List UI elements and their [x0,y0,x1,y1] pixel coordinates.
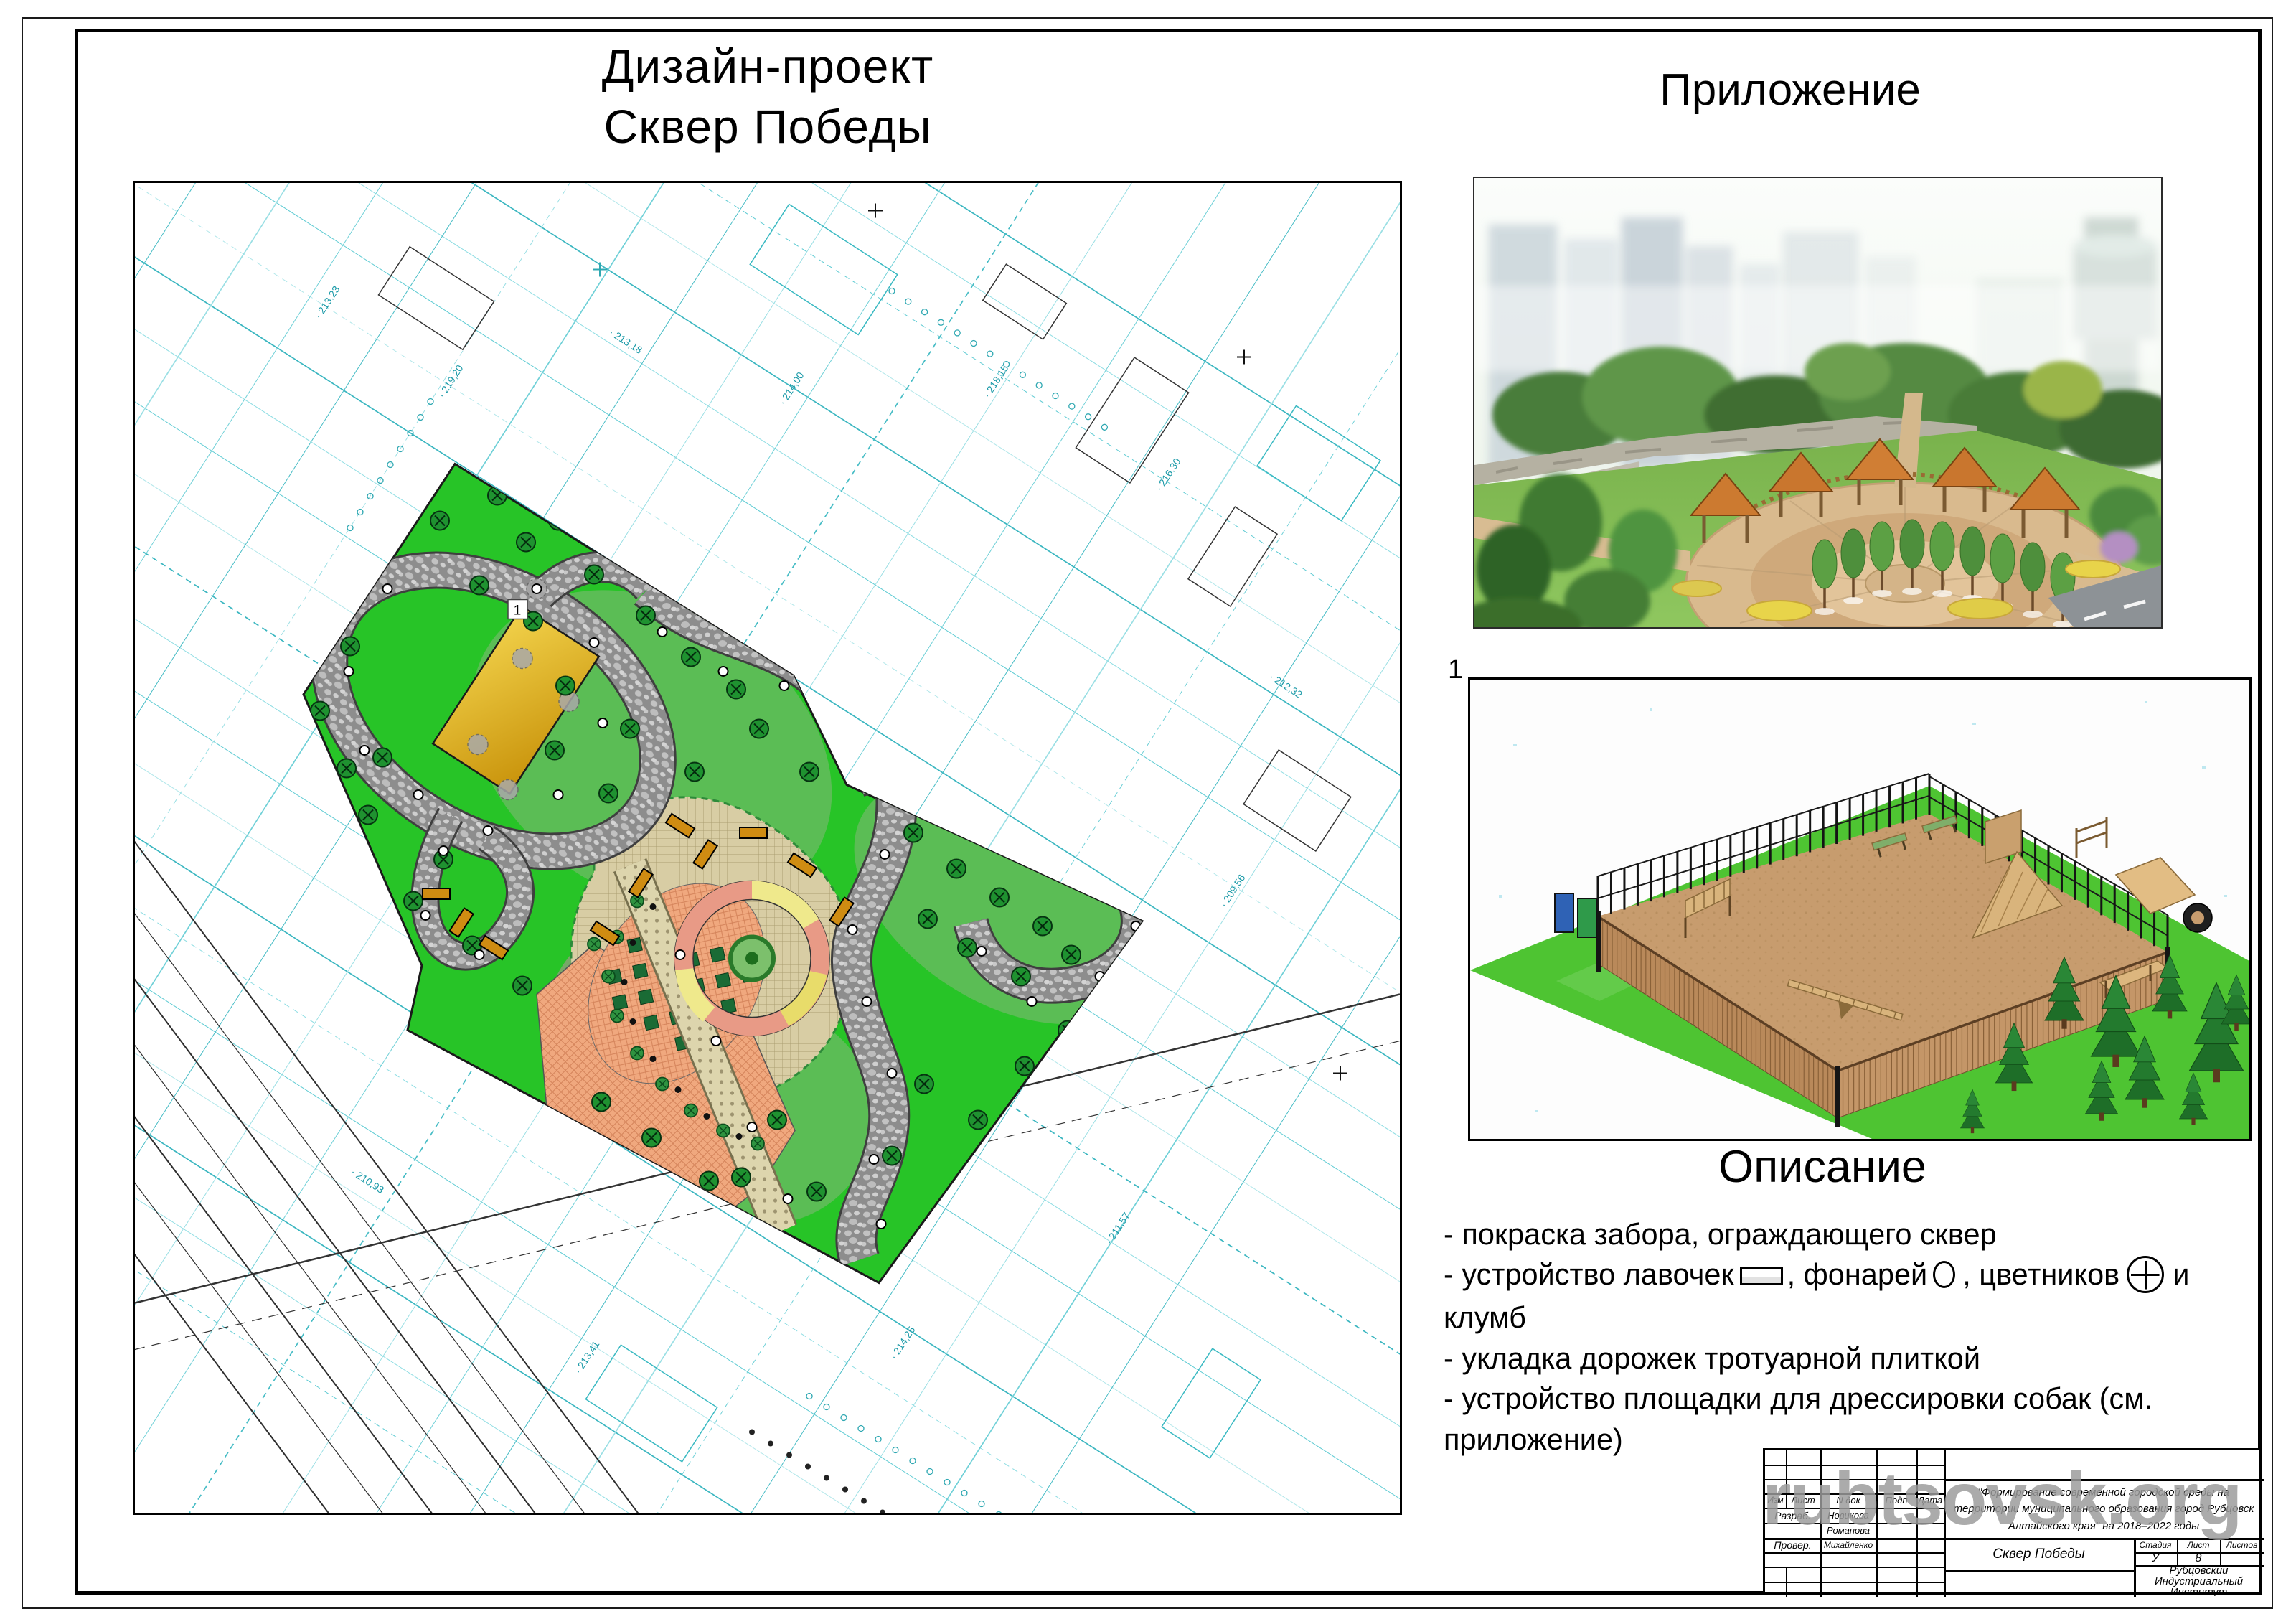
bench-icon [1740,1267,1783,1285]
site-plan-map: · 213,23· 219,20· 213,18· 214,00· 218,15… [133,181,1402,1515]
svg-text:· 218,15: · 218,15 [981,362,1011,400]
svg-text:· 214,00: · 214,00 [776,370,806,407]
svg-text:· 213,18: · 213,18 [607,327,644,357]
dog-area-svg [1470,680,2249,1139]
park-render-image [1473,177,2163,629]
park-render-svg [1474,178,2161,627]
svg-text:· 211,57: · 211,57 [1103,1210,1132,1247]
svg-text:· 216,30: · 216,30 [1153,456,1183,493]
lamp-icon [1933,1261,1955,1288]
appendix-title: Приложение [1507,65,2074,116]
description-list: - покраска забора, ограждающего сквер - … [1444,1214,2262,1460]
page-title-line2: Сквер Победы [402,96,1134,156]
svg-text:· 213,23: · 213,23 [312,283,342,321]
description-item-1: - покраска забора, ограждающего сквер [1444,1214,2262,1254]
description-item2-text-a: - устройство лавочек [1444,1257,1734,1291]
dog-area-render-image [1468,677,2252,1141]
figure1-label: 1 [1448,654,1463,685]
svg-text:· 213,41: · 213,41 [572,1338,602,1376]
svg-text:· 214,25: · 214,25 [888,1324,918,1361]
site-plan-svg: · 213,23· 219,20· 213,18· 214,00· 218,15… [135,183,1400,1513]
description-item2-text-b: , фонарей [1787,1257,1928,1291]
page-title: Дизайн-проект Сквер Победы [402,36,1134,157]
stamp-object-title: Сквер Победы [1944,1538,2134,1570]
svg-text:· 209,56: · 209,56 [1218,872,1248,909]
page-title-line1: Дизайн-проект [402,36,1134,96]
building-label: 1 [514,604,522,619]
description-item-3: - укладка дорожек тротуарной плиткой [1444,1338,2262,1379]
description-item-2: - устройство лавочек, фонарей, цветников… [1444,1254,2262,1338]
description-title: Описание [1428,1141,2217,1193]
stamp-organization: Рубцовский Индустриальный Институт [2137,1566,2261,1596]
svg-text:· 219,20: · 219,20 [436,362,466,400]
flowerbed-icon [2127,1256,2164,1293]
description-item2-text-c: , цветников [1962,1257,2119,1291]
stamp-sheet-value: 8 [2177,1552,2220,1565]
stamp-stage-value: У [2134,1552,2177,1565]
drawing-sheet: Дизайн-проект Сквер Победы Приложение [0,0,2296,1624]
watermark: rubtsovsk.org [1762,1457,2241,1542]
